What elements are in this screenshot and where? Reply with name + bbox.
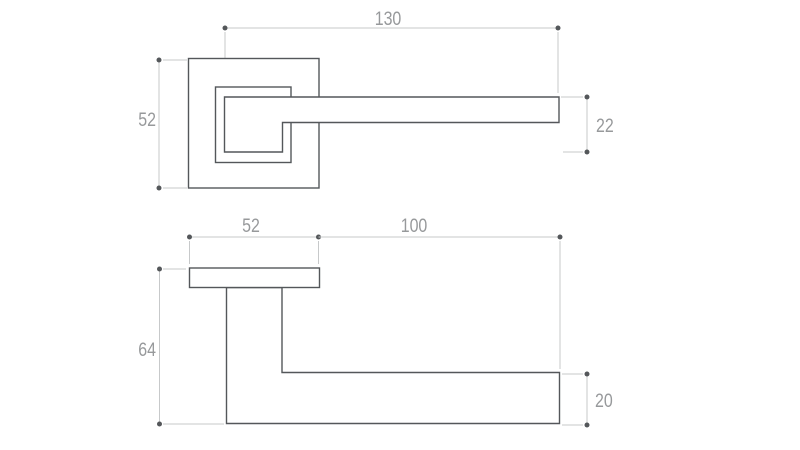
dimension-label-52-front: 52: [138, 109, 156, 131]
dimension-label-130: 130: [375, 8, 402, 30]
dimension-endpoint-dot: [556, 26, 561, 31]
dimension-label-64: 64: [138, 339, 156, 361]
dimension-label-52-side: 52: [242, 215, 260, 237]
dimension-label-20: 20: [595, 390, 613, 412]
dimension-endpoint-dot: [157, 58, 162, 63]
dimension-endpoint-dot: [223, 26, 228, 31]
door-handle-technical-drawing: 130 52 22: [0, 0, 800, 450]
rosette-side-outline: [190, 268, 320, 288]
dimension-endpoint-dot: [157, 422, 162, 427]
dim-front-rosette-size: 52: [138, 58, 187, 191]
lever-front-shape: [225, 97, 560, 152]
dim-side-overall-depth: 64: [138, 267, 224, 427]
dim-side-rosette-width: 52: [187, 215, 321, 264]
dim-side-lever-thickness: 20: [562, 372, 613, 428]
dimension-endpoint-dot: [585, 150, 590, 155]
front-view-group: 130 52 22: [138, 8, 614, 191]
dimension-label-22: 22: [596, 115, 614, 137]
side-view-group: 52 100 64 20: [138, 215, 613, 428]
dimension-endpoint-dot: [558, 235, 563, 240]
dimension-endpoint-dot: [157, 267, 162, 272]
dimension-endpoint-dot: [585, 372, 590, 377]
dim-side-lever-reach: 100: [319, 215, 563, 369]
lever-side-shape: [227, 288, 560, 424]
dimension-endpoint-dot: [585, 423, 590, 428]
dimension-label-100: 100: [401, 215, 428, 237]
dimension-endpoint-dot: [187, 235, 192, 240]
dimension-endpoint-dot: [157, 186, 162, 191]
dimension-endpoint-dot: [585, 95, 590, 100]
dim-front-lever-height: 22: [561, 95, 614, 155]
